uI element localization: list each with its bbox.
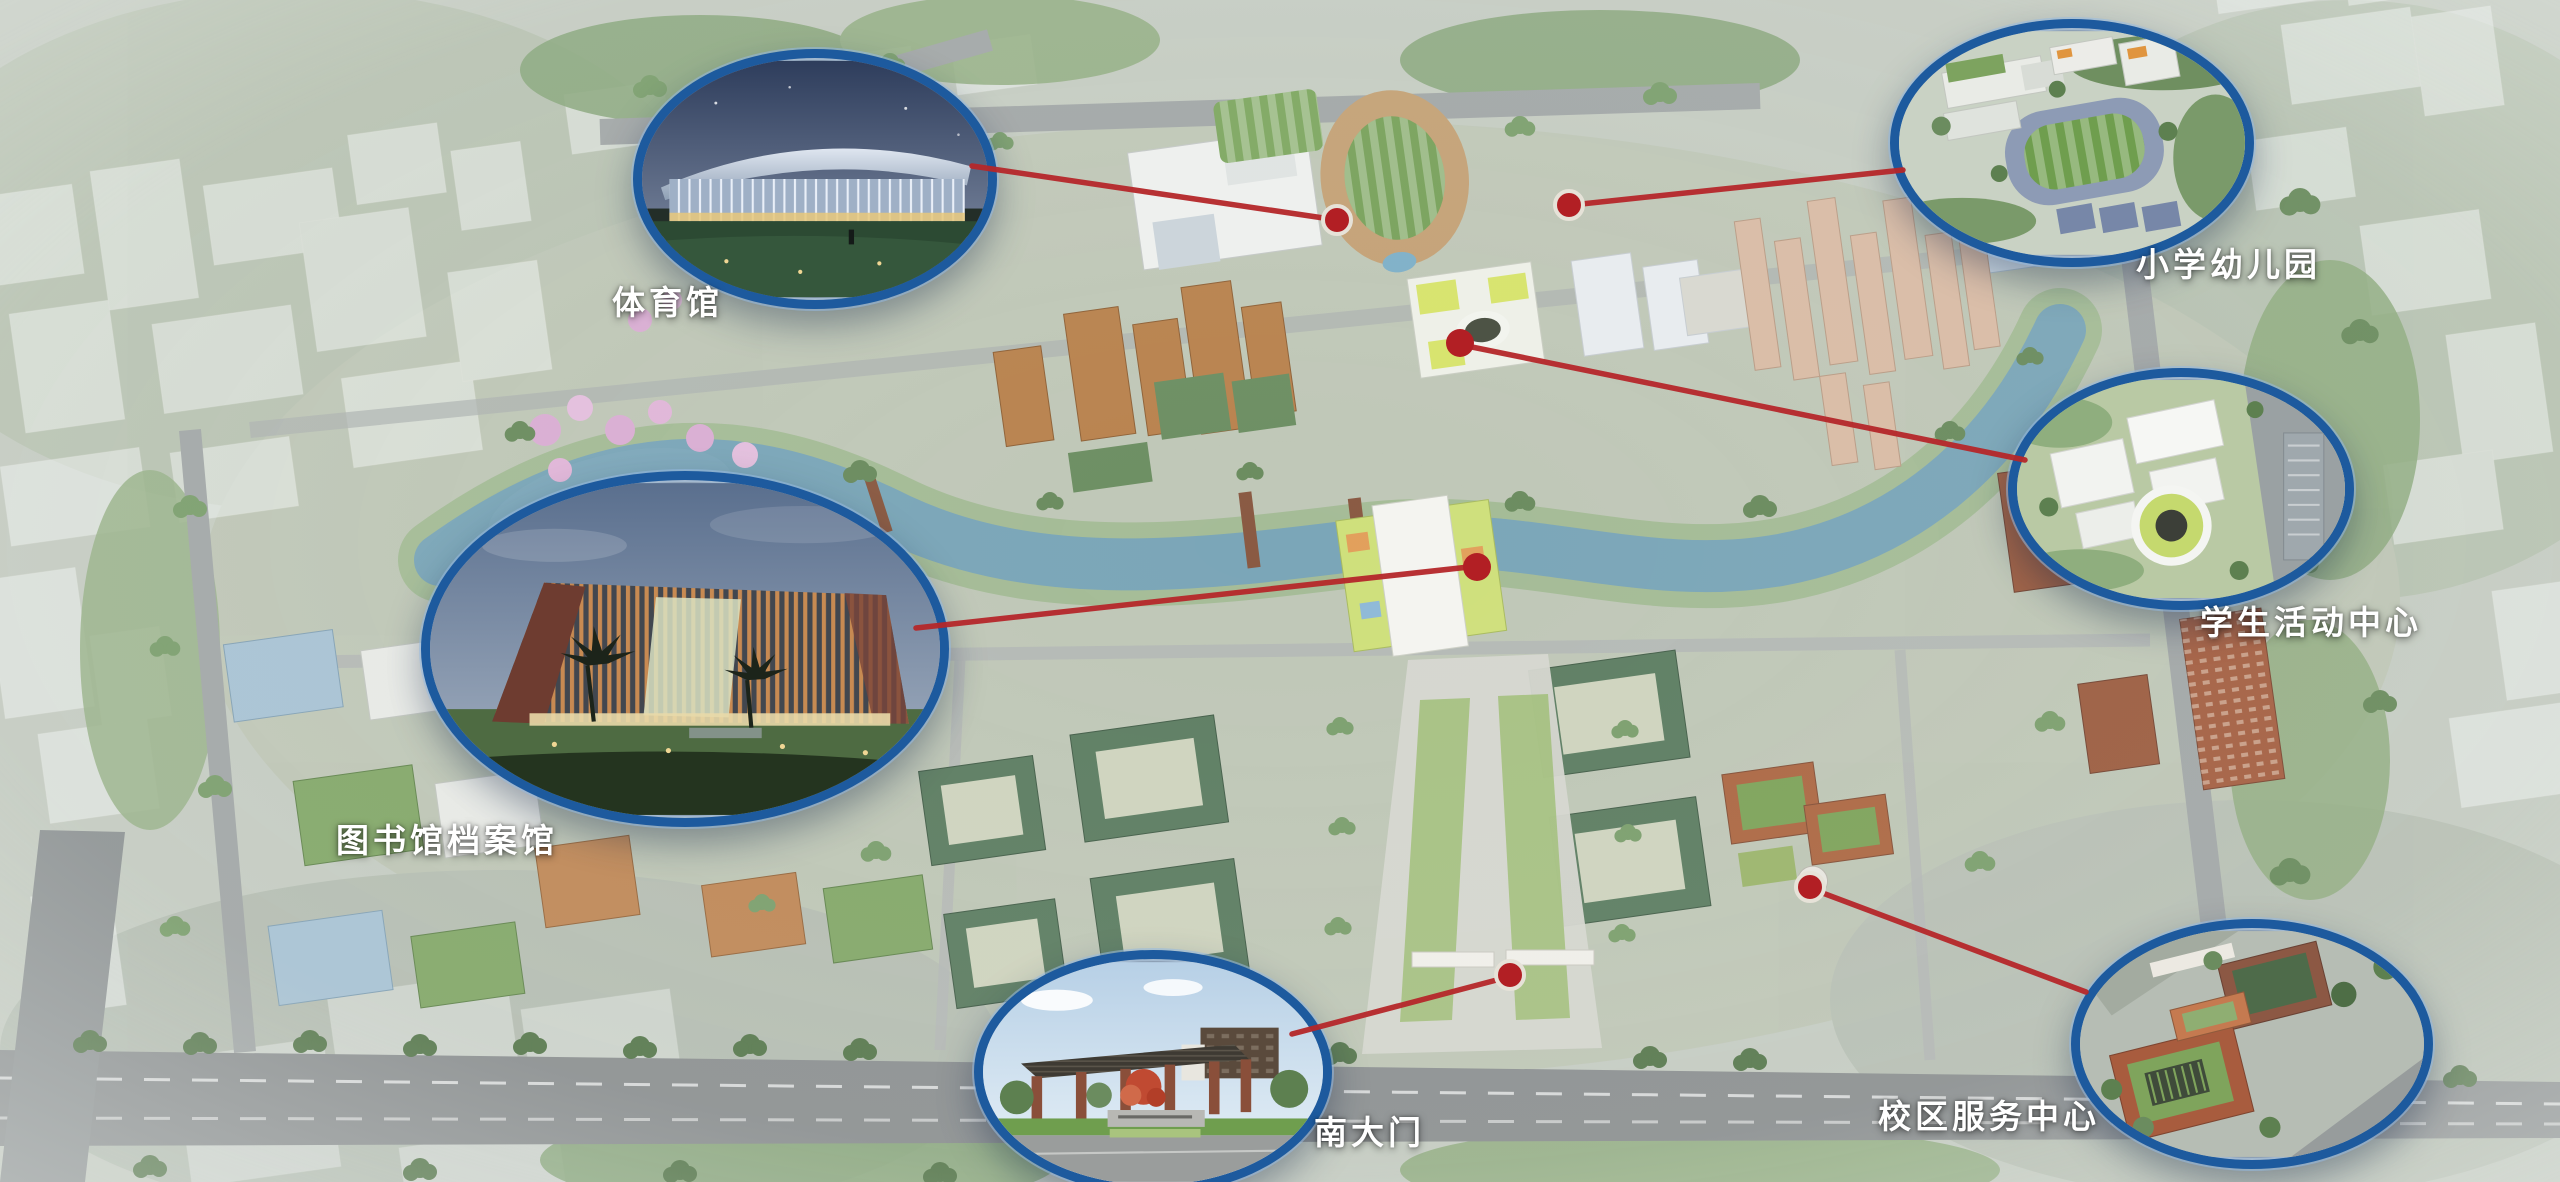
student-activity-center-thumbnail <box>2017 377 2345 601</box>
library-thumbnail <box>430 480 940 818</box>
label-campus-service-center: 校区服务中心 <box>1878 1090 2100 1138</box>
label-student-activity-center: 学生活动中心 <box>2200 596 2422 644</box>
primary-school-thumbnail <box>1899 28 2245 258</box>
callout-library-archives <box>421 471 949 827</box>
callout-gymnasium <box>633 49 997 309</box>
callout-campus-service-center <box>2071 919 2433 1169</box>
label-primary-school-kindergarten: 小学幼儿园 <box>2136 238 2321 286</box>
label-south-gate: 南大门 <box>1314 1106 1425 1154</box>
callout-south-gate <box>974 950 1332 1182</box>
label-gymnasium: 体育馆 <box>612 276 723 324</box>
campus-service-center-thumbnail <box>2080 928 2424 1160</box>
label-library-archives: 图书馆档案馆 <box>336 814 558 862</box>
campus-masterplan-screenshot: 体育馆 小学幼儿园 学生活动中心 图书馆档案馆 南大门 校区服务中心 <box>0 0 2560 1182</box>
callout-student-activity-center <box>2008 368 2354 610</box>
south-gate-thumbnail <box>983 959 1323 1182</box>
callout-primary-school-kindergarten <box>1890 19 2254 267</box>
gymnasium-thumbnail <box>642 58 988 300</box>
